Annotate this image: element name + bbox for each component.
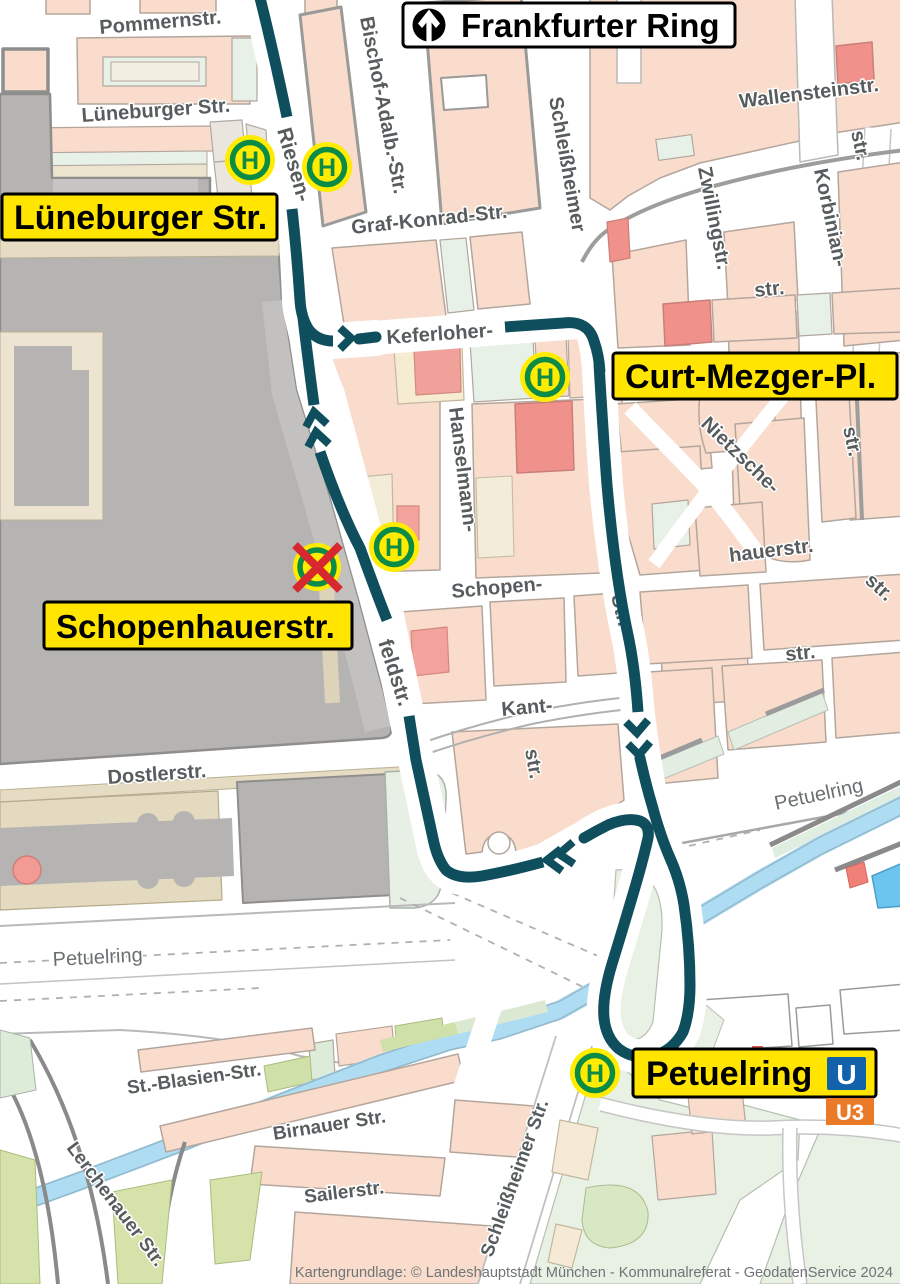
svg-text:Lüneburger Str.: Lüneburger Str.: [14, 199, 267, 237]
svg-text:H: H: [385, 534, 403, 562]
svg-text:H: H: [241, 147, 259, 175]
svg-text:Schopenhauerstr.: Schopenhauerstr.: [56, 608, 335, 645]
svg-text:H: H: [536, 364, 554, 392]
svg-text:str.: str.: [753, 277, 785, 302]
svg-text:Kant-: Kant-: [501, 695, 554, 721]
svg-text:Curt-Mezger-Pl.: Curt-Mezger-Pl.: [625, 358, 876, 396]
svg-text:H: H: [318, 154, 336, 182]
svg-text:Petuelring: Petuelring: [646, 1055, 812, 1093]
svg-text:Frankfurter Ring: Frankfurter Ring: [461, 7, 720, 44]
svg-text:H: H: [586, 1060, 604, 1088]
svg-text:U3: U3: [836, 1100, 864, 1125]
svg-text:Kartengrundlage: © Landeshaupt: Kartengrundlage: © Landeshauptstadt Münc…: [295, 1265, 893, 1281]
svg-text:str.: str.: [784, 641, 816, 666]
svg-text:Petuelring: Petuelring: [52, 944, 143, 971]
svg-text:U: U: [836, 1059, 856, 1090]
